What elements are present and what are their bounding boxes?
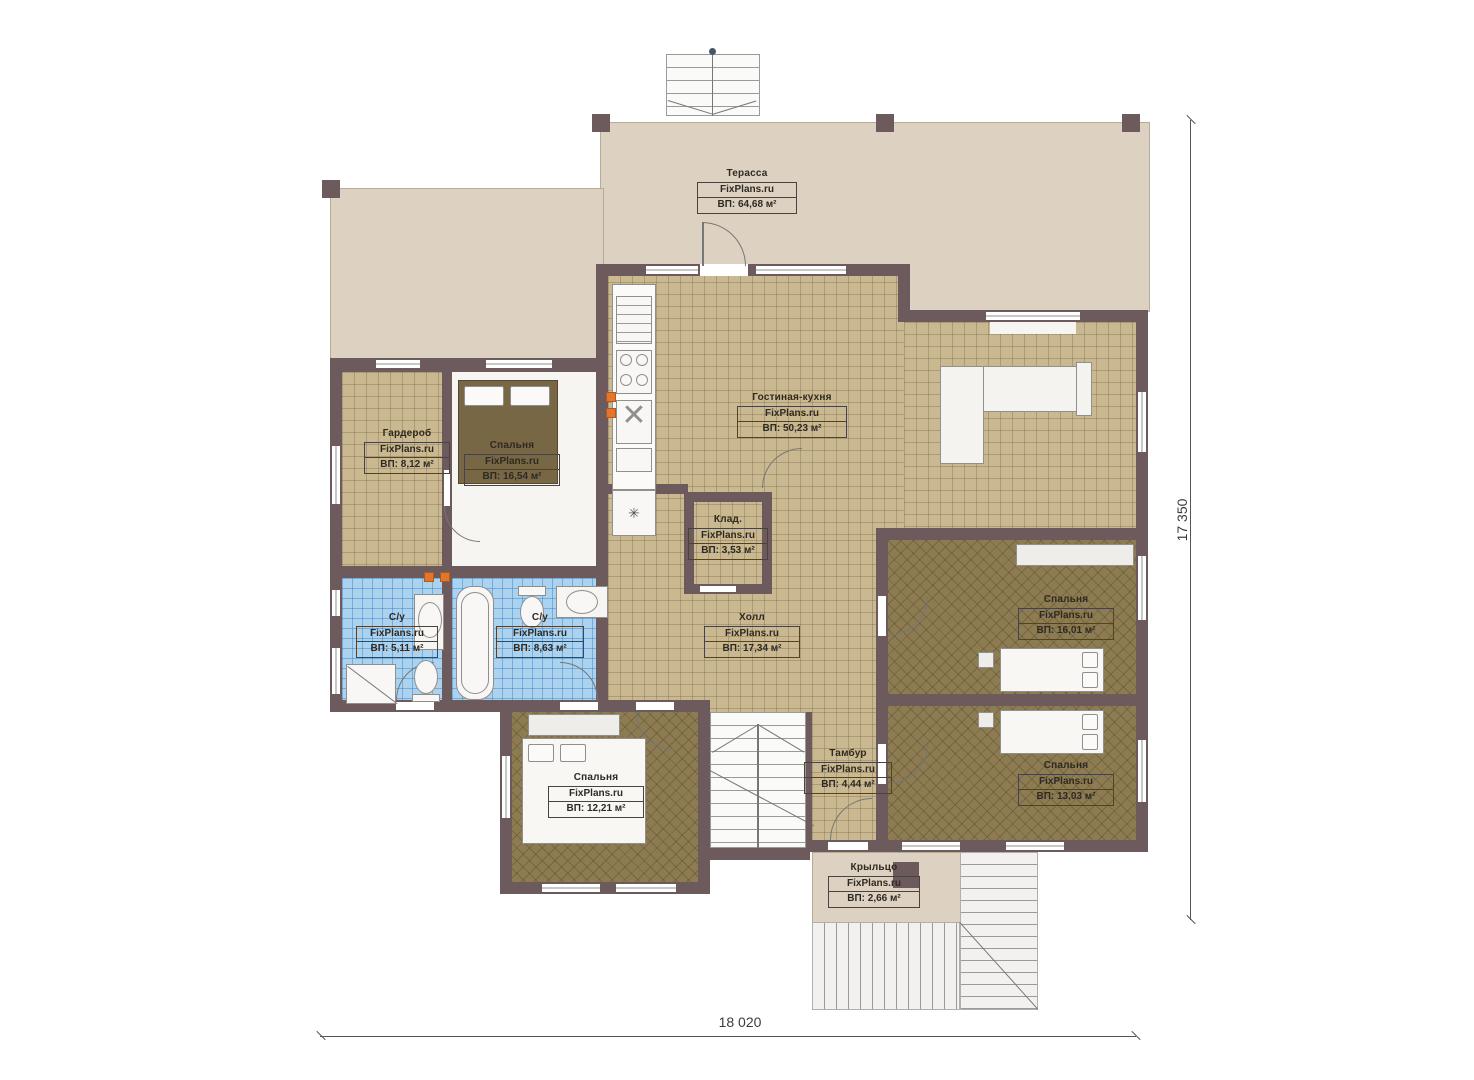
wall [336,566,608,578]
burner-icon [620,354,632,366]
room-label-bedroom1: Спальня FixPlans.ru ВП: 16,54 м² [464,440,560,486]
terrace-area-left [330,188,604,362]
room-name: Тамбур [804,748,892,761]
room-label-tambour: Тамбур FixPlans.ru ВП: 4,44 м² [804,748,892,794]
nightstand [978,652,994,668]
room-area: ВП: 16,54 м² [465,470,559,485]
door-gap [878,596,886,636]
terrace-post [322,180,340,198]
cabinet-cross-icon: ✕ [621,399,646,432]
room-site: FixPlans.ru [365,443,449,459]
dimension-tick [1186,915,1195,924]
room-name: Крыльцо [828,862,920,875]
living-kitchen-floor-right [904,322,1136,540]
wall [702,848,810,860]
pillow [464,386,504,406]
toilet [414,660,438,694]
terrace-post [592,114,610,132]
pillow [1082,734,1098,750]
door-leaf [702,222,704,266]
window [376,360,420,368]
wall [888,694,1148,706]
door-gap [396,702,434,710]
window [332,446,340,504]
window [756,266,846,274]
room-info-box: FixPlans.ru ВП: 4,44 м² [804,762,892,794]
pillow [528,744,554,762]
window [332,590,340,616]
room-site: FixPlans.ru [829,877,919,893]
pillow [1082,652,1098,668]
dimension-label-height: 17 350 [1174,460,1190,580]
bathtub-inner [461,592,489,694]
pillow [510,386,550,406]
room-area: ВП: 64,68 м² [698,198,796,213]
room-name: Спальня [1018,594,1114,607]
wall [330,358,608,372]
toilet-cistern [412,694,440,702]
window [616,884,676,892]
room-info-box: FixPlans.ru ВП: 12,21 м² [548,786,644,818]
burner-icon [636,374,648,386]
pillow [560,744,586,762]
wall [596,264,608,712]
room-label-bath2: С/у FixPlans.ru ВП: 8,63 м² [496,612,584,658]
wall [684,492,772,502]
room-site: FixPlans.ru [705,627,799,643]
fridge-icon [616,296,652,344]
door-gap [560,702,598,710]
pillow [1082,714,1098,730]
room-name: Холл [704,612,800,625]
pillow [1082,672,1098,688]
terrace-steps-centerline [712,54,713,116]
room-site: FixPlans.ru [465,455,559,471]
terrace-post [876,114,894,132]
door-gap [828,842,868,850]
utility-marker [424,572,434,582]
washing-machine-glyph: ✳ [628,505,640,521]
room-name: Гостиная-кухня [737,392,847,405]
porch-steps-bottom [812,922,960,1010]
room-site: FixPlans.ru [357,627,437,643]
room-name: Гардероб [364,428,450,441]
room-label-storage: Клад. FixPlans.ru ВП: 3,53 м² [688,514,768,560]
room-site: FixPlans.ru [549,787,643,803]
room-area: ВП: 50,23 м² [738,422,846,437]
room-info-box: FixPlans.ru ВП: 17,34 м² [704,626,800,658]
room-site: FixPlans.ru [497,627,583,643]
door-gap [444,470,450,506]
room-area: ВП: 5,11 м² [357,642,437,657]
room-label-porch: Крыльцо FixPlans.ru ВП: 2,66 м² [828,862,920,908]
room-name: Спальня [548,772,644,785]
window [486,360,552,368]
porch-steps-right [960,852,1038,1010]
utility-marker [606,408,616,418]
room-label-bath1: С/у FixPlans.ru ВП: 5,11 м² [356,612,438,658]
room-info-box: FixPlans.ru ВП: 16,54 м² [464,454,560,486]
window [646,266,698,274]
room-area: ВП: 8,12 м² [365,458,449,473]
room-label-hall: Холл FixPlans.ru ВП: 17,34 м² [704,612,800,658]
steps-marker-dot [709,48,716,55]
utility-marker [440,572,450,582]
wall [698,712,710,894]
room-label-living: Гостиная-кухня FixPlans.ru ВП: 50,23 м² [737,392,847,438]
room-name: Спальня [464,440,560,453]
room-site: FixPlans.ru [689,529,767,545]
door-gap [636,702,674,710]
window [502,756,510,818]
room-area: ВП: 3,53 м² [689,544,767,559]
dimension-label-width: 18 020 [640,1014,840,1030]
window [902,842,960,850]
door-gap [700,586,736,592]
room-info-box: FixPlans.ru ВП: 50,23 м² [737,406,847,438]
room-label-wardrobe: Гардероб FixPlans.ru ВП: 8,12 м² [364,428,450,474]
room-name: Клад. [688,514,768,527]
room-site: FixPlans.ru [698,183,796,199]
window [1006,842,1064,850]
room-area: ВП: 12,21 м² [549,802,643,817]
wall [500,882,710,894]
terrace-steps [666,54,760,116]
sofa [940,366,984,464]
room-name: С/у [496,612,584,625]
room-label-bedroom3: Спальня FixPlans.ru ВП: 12,21 м² [548,772,644,818]
room-info-box: FixPlans.ru ВП: 8,12 м² [364,442,450,474]
room-label-bedroom4: Спальня FixPlans.ru ВП: 13,03 м² [1018,760,1114,806]
dimension-line-bottom [320,1036,1136,1037]
room-info-box: FixPlans.ru ВП: 2,66 м² [828,876,920,908]
room-area: ВП: 2,66 м² [829,892,919,907]
window [332,648,340,694]
nightstand [978,712,994,728]
wall [876,528,1148,540]
room-info-box: FixPlans.ru ВП: 64,68 м² [697,182,797,214]
room-label-terrace: Терасса FixPlans.ru ВП: 64,68 м² [697,168,797,214]
staircase-centerline [757,724,759,848]
room-info-box: FixPlans.ru ВП: 8,63 м² [496,626,584,658]
room-area: ВП: 17,34 м² [705,642,799,657]
washing-machine-icon: ✳ [612,490,656,536]
room-info-box: FixPlans.ru ВП: 3,53 м² [688,528,768,560]
floor-plan: ✕ ✳ Терасса FixPlans.ru ВП: 64,68 м² [0,0,1474,1080]
room-name: Спальня [1018,760,1114,773]
room-area: ВП: 13,03 м² [1019,790,1113,805]
kitchen-cabinet [616,448,652,472]
room-site: FixPlans.ru [1019,775,1113,791]
room-label-bedroom2: Спальня FixPlans.ru ВП: 16,01 м² [1018,594,1114,640]
room-site: FixPlans.ru [805,763,891,779]
sofa-armrest [1076,362,1092,416]
wardrobe-cabinet [1016,544,1134,566]
window-sill [990,322,1076,334]
burner-icon [636,354,648,366]
window [1138,740,1146,802]
wall [596,264,910,276]
window [542,884,600,892]
room-info-box: FixPlans.ru ВП: 16,01 м² [1018,608,1114,640]
dimension-line-right [1190,120,1191,920]
room-area: ВП: 8,63 м² [497,642,583,657]
terrace-post [1122,114,1140,132]
window [986,312,1080,320]
window [1138,392,1146,452]
room-name: С/у [356,612,438,625]
burner-icon [620,374,632,386]
room-area: ВП: 4,44 м² [805,778,891,793]
wardrobe-cabinet [528,714,620,736]
kitchen-cabinet: ✕ [616,400,652,444]
toilet-cistern [518,586,546,596]
room-area: ВП: 16,01 м² [1019,624,1113,639]
window [1138,556,1146,620]
room-site: FixPlans.ru [1019,609,1113,625]
dimension-tick [1186,115,1195,124]
room-site: FixPlans.ru [738,407,846,423]
room-info-box: FixPlans.ru ВП: 5,11 м² [356,626,438,658]
sink [566,590,598,614]
utility-marker [606,392,616,402]
wall [876,528,888,852]
room-info-box: FixPlans.ru ВП: 13,03 м² [1018,774,1114,806]
room-name: Терасса [697,168,797,181]
